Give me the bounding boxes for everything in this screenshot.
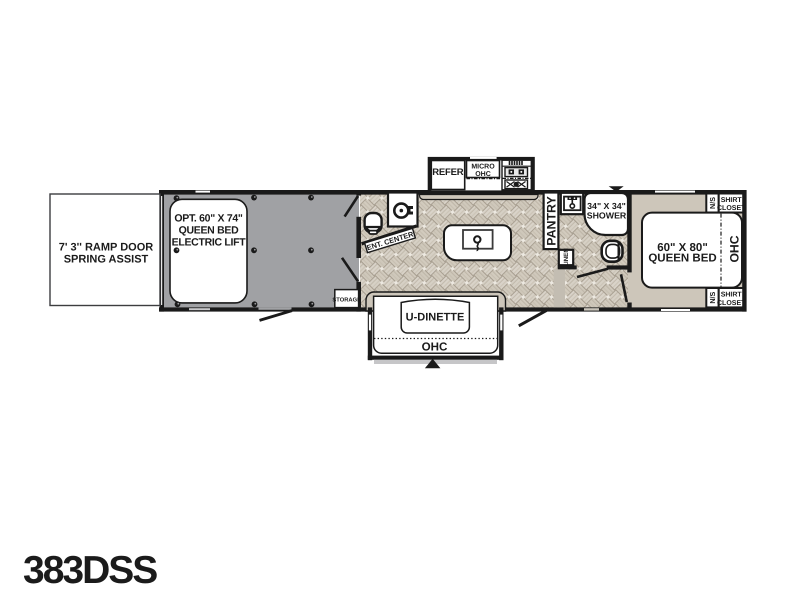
svg-text:N/S: N/S [708, 197, 717, 209]
svg-text:PANTRY: PANTRY [544, 195, 558, 245]
svg-text:N/S: N/S [708, 292, 717, 304]
svg-text:OHC: OHC [728, 235, 742, 262]
svg-text:7' 3'' RAMP DOOR: 7' 3'' RAMP DOOR [59, 242, 153, 254]
svg-text:SHIRT: SHIRT [721, 197, 743, 204]
svg-text:SPRING ASSIST: SPRING ASSIST [64, 253, 149, 265]
svg-text:SHIRT: SHIRT [721, 292, 743, 299]
svg-text:OPT. 60" X 74": OPT. 60" X 74" [174, 213, 243, 225]
svg-text:QUEEN BED: QUEEN BED [648, 253, 716, 265]
svg-text:ELECTRIC LIFT: ELECTRIC LIFT [172, 237, 247, 249]
svg-text:OHC: OHC [475, 171, 491, 178]
svg-text:SHOWER: SHOWER [587, 210, 627, 220]
svg-text:MICRO: MICRO [471, 164, 495, 171]
svg-text:REFER: REFER [432, 167, 464, 178]
svg-text:383DSS: 383DSS [23, 549, 157, 592]
svg-text:CLOSET: CLOSET [717, 300, 746, 307]
svg-text:STORAGE: STORAGE [332, 296, 361, 303]
svg-text:LINEN: LINEN [563, 248, 570, 267]
svg-text:CLOSET: CLOSET [717, 205, 746, 212]
svg-text:QUEEN BED: QUEEN BED [179, 225, 239, 237]
svg-text:OHC: OHC [422, 341, 448, 354]
svg-text:U-DINETTE: U-DINETTE [406, 311, 465, 323]
